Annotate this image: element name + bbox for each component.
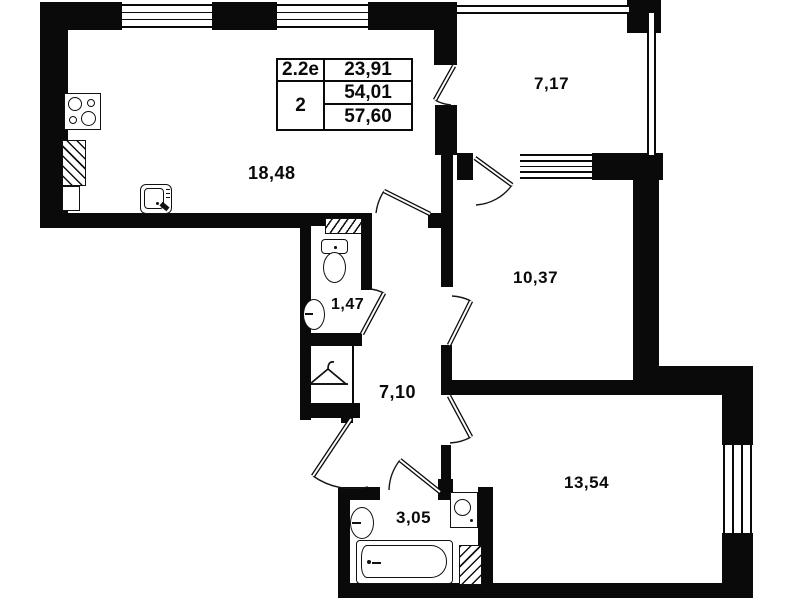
room-label-bedroom: 10,37: [513, 268, 558, 288]
washbasin-wc-tap: [305, 313, 313, 315]
room-label-bathroom: 3,05: [396, 508, 431, 528]
washbasin-bathroom-tap: [352, 522, 361, 524]
room-label-hallway: 7,10: [379, 382, 416, 403]
door-arc-loggia-bedroom: [476, 185, 512, 205]
info-area-3: 57,60: [325, 105, 411, 129]
door-arc-bedroom: [452, 296, 471, 301]
info-rooms-count: 2: [278, 82, 325, 129]
floor-plan: 18,48 7,17 10,37 1,47 7,10 13,54 3,05 2.…: [0, 0, 799, 600]
door-arc-kitchen-hallway: [376, 191, 384, 213]
door-arc-kitchen-loggia: [435, 100, 451, 105]
door-arc-livingroom: [450, 437, 471, 443]
info-plan-type: 2.2е: [278, 60, 325, 82]
room-label-loggia: 7,17: [534, 74, 569, 94]
info-area-2: 54,01: [325, 82, 411, 105]
room-label-living-room: 13,54: [564, 473, 609, 493]
door-arc-entrance: [313, 476, 368, 489]
info-area-1: 23,91: [325, 60, 411, 82]
door-arc-bathroom: [389, 460, 400, 490]
room-label-kitchen-living: 18,48: [248, 163, 296, 184]
room-label-wc: 1,47: [331, 296, 364, 314]
apartment-info-table: 2.2е 23,91 2 54,01 57,60: [276, 58, 413, 131]
